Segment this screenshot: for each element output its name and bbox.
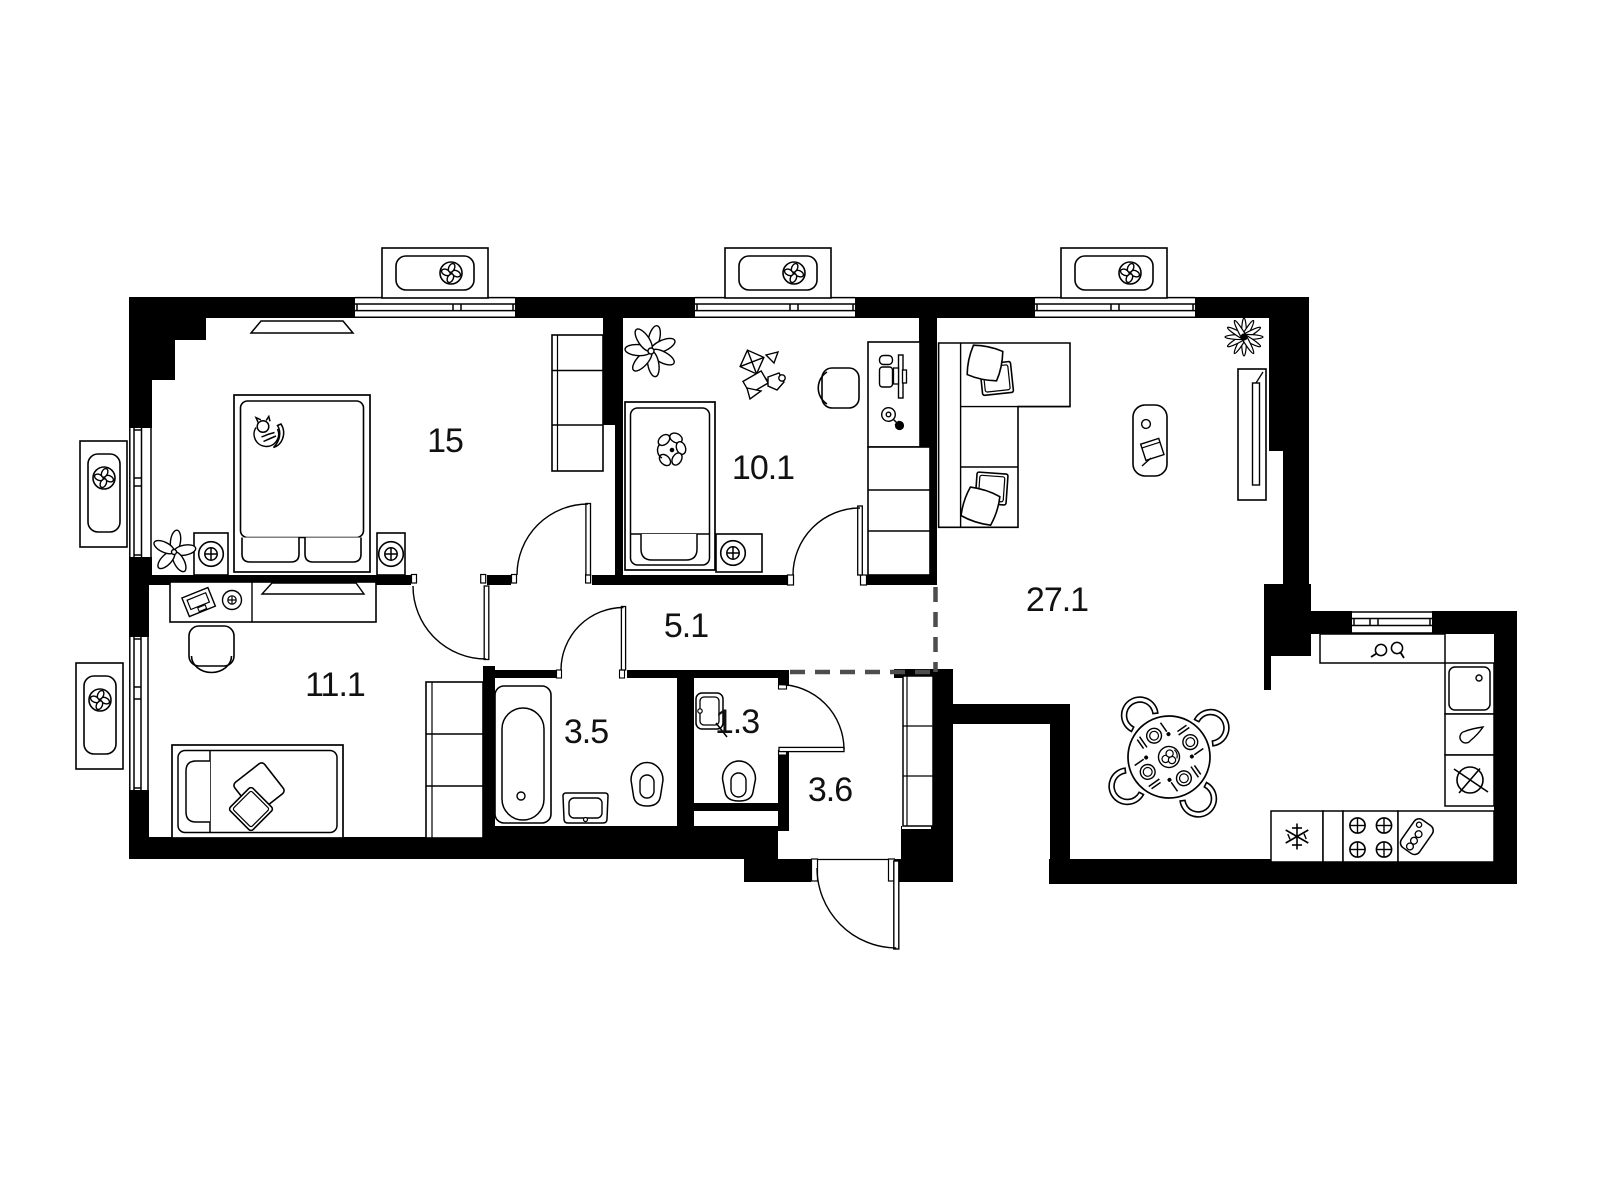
svg-text:5.1: 5.1 <box>664 607 708 645</box>
svg-text:3.5: 3.5 <box>564 713 608 751</box>
svg-text:3.6: 3.6 <box>808 771 852 809</box>
svg-text:1.3: 1.3 <box>715 703 759 741</box>
svg-text:27.1: 27.1 <box>1026 581 1088 619</box>
svg-text:11.1: 11.1 <box>305 666 365 704</box>
svg-text:15: 15 <box>427 422 463 460</box>
svg-text:10.1: 10.1 <box>732 449 794 487</box>
